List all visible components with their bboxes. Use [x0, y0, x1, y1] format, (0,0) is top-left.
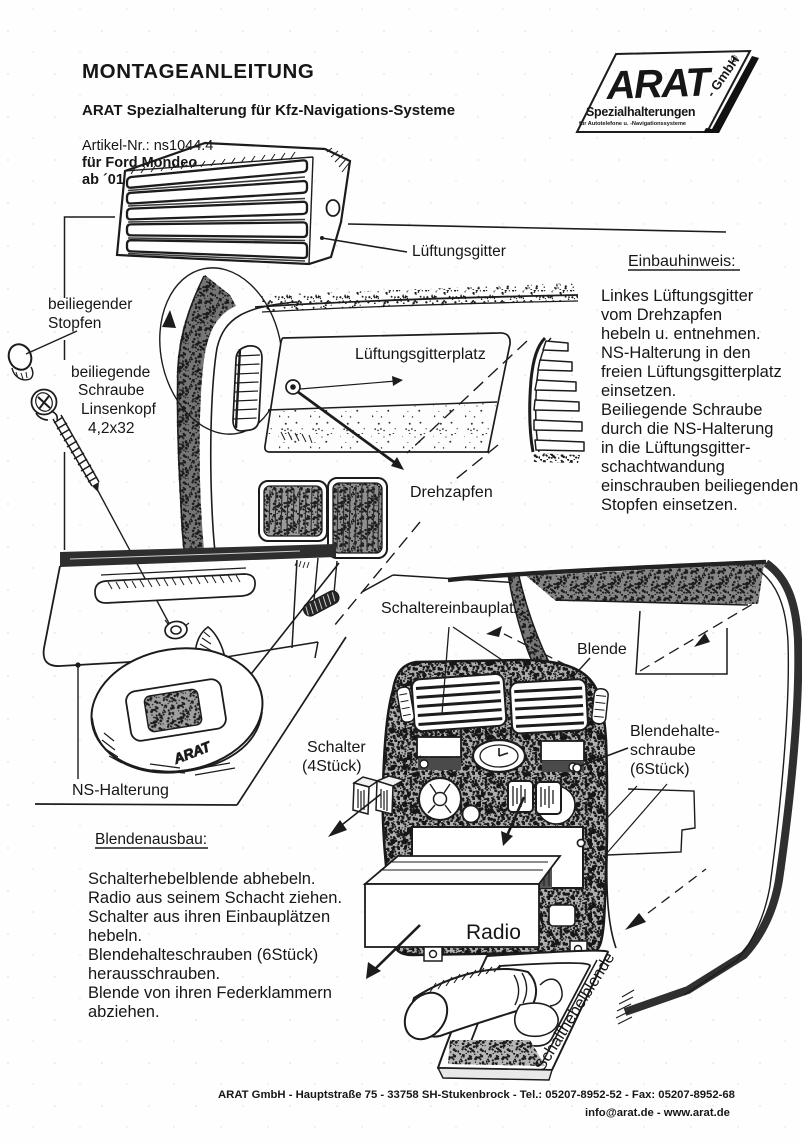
- svg-text:Schaltereinbauplatz: Schaltereinbauplatz: [381, 600, 522, 617]
- svg-text:Schalterhebelblende abhebeln.: Schalterhebelblende abhebeln.: [88, 870, 316, 888]
- svg-text:Schraube: Schraube: [78, 382, 144, 399]
- svg-text:ARAT GmbH - Hauptstraße 75: ARAT GmbH - Hauptstraße 75 - 33758 SH-St…: [218, 1089, 735, 1101]
- svg-text:schraube: schraube: [630, 742, 696, 759]
- svg-text:®: ®: [731, 54, 738, 64]
- svg-text:Blendehalte-: Blendehalte-: [630, 723, 720, 740]
- svg-text:Blendenausbau:: Blendenausbau:: [95, 831, 207, 848]
- svg-text:Linkes Lüftungsgitter: Linkes Lüftungsgitter: [601, 287, 754, 305]
- svg-text:Stopfen: Stopfen: [48, 315, 101, 332]
- svg-text:Blende: Blende: [577, 641, 627, 658]
- svg-text:Blendehalteschrauben (6Stück): Blendehalteschrauben (6Stück): [88, 946, 318, 964]
- svg-text:vom Drehzapfen: vom Drehzapfen: [601, 306, 722, 324]
- svg-text:ARAT Spezialhalterung für Kfz-: ARAT Spezialhalterung für Kfz-Navigation…: [82, 102, 455, 119]
- svg-text:info@arat.de - www.arat.de: info@arat.de - www.arat.de: [585, 1107, 730, 1119]
- svg-text:Linsenkopf: Linsenkopf: [81, 401, 157, 418]
- svg-text:Lüftungsgitter: Lüftungsgitter: [412, 243, 506, 260]
- svg-text:für Autotelefone u. -Navigatio: für Autotelefone u. -Navigationssysteme: [579, 121, 686, 127]
- svg-text:4,2x32: 4,2x32: [88, 420, 135, 437]
- svg-text:MONTAGEANLEITUNG: MONTAGEANLEITUNG: [82, 60, 314, 83]
- svg-text:abziehen.: abziehen.: [88, 1003, 160, 1021]
- svg-text:Blende von ihren Federklammern: Blende von ihren Federklammern: [88, 984, 332, 1002]
- svg-text:für Ford Mondeo: für Ford Mondeo: [82, 155, 197, 171]
- svg-text:durch die NS-Halterung: durch die NS-Halterung: [601, 420, 773, 438]
- svg-text:beiliegende: beiliegende: [71, 364, 150, 381]
- svg-text:einschrauben beiliegenden: einschrauben beiliegenden: [601, 477, 798, 495]
- svg-text:(6Stück): (6Stück): [630, 761, 690, 778]
- svg-text:Lüftungsgitterplatz: Lüftungsgitterplatz: [355, 346, 486, 363]
- svg-text:Einbauhinweis:: Einbauhinweis:: [628, 253, 736, 270]
- svg-text:einsetzen.: einsetzen.: [601, 382, 676, 400]
- svg-text:Schalter: Schalter: [307, 739, 366, 756]
- svg-text:Beiliegende Schraube: Beiliegende Schraube: [601, 401, 762, 419]
- svg-text:freien Lüftungsgitterplatz: freien Lüftungsgitterplatz: [601, 363, 782, 381]
- svg-text:hebeln u. entnehmen.: hebeln u. entnehmen.: [601, 325, 761, 343]
- svg-text:Drehzapfen: Drehzapfen: [410, 484, 493, 501]
- svg-text:ab ´01: ab ´01: [82, 172, 124, 188]
- svg-text:Radio aus seinem Schacht ziehe: Radio aus seinem Schacht ziehen.: [88, 889, 342, 907]
- svg-text:Radio: Radio: [466, 921, 521, 944]
- svg-text:ARAT: ARAT: [605, 60, 715, 108]
- svg-text:(4Stück): (4Stück): [302, 758, 362, 775]
- svg-text:beiliegender: beiliegender: [48, 296, 132, 313]
- svg-text:Stopfen einsetzen.: Stopfen einsetzen.: [601, 496, 738, 514]
- svg-text:NS-Halterung in den: NS-Halterung in den: [601, 344, 751, 362]
- svg-text:schachtwandung: schachtwandung: [601, 458, 725, 476]
- svg-text:Schalter aus ihren Einbauplätz: Schalter aus ihren Einbauplätzen: [88, 908, 330, 926]
- svg-text:herausschrauben.: herausschrauben.: [88, 965, 220, 983]
- svg-text:NS-Halterung: NS-Halterung: [72, 782, 169, 799]
- svg-text:hebeln.: hebeln.: [88, 927, 142, 945]
- svg-text:in die Lüftungsgitter-: in die Lüftungsgitter-: [601, 439, 751, 457]
- svg-text:Spezialhalterungen: Spezialhalterungen: [586, 105, 695, 119]
